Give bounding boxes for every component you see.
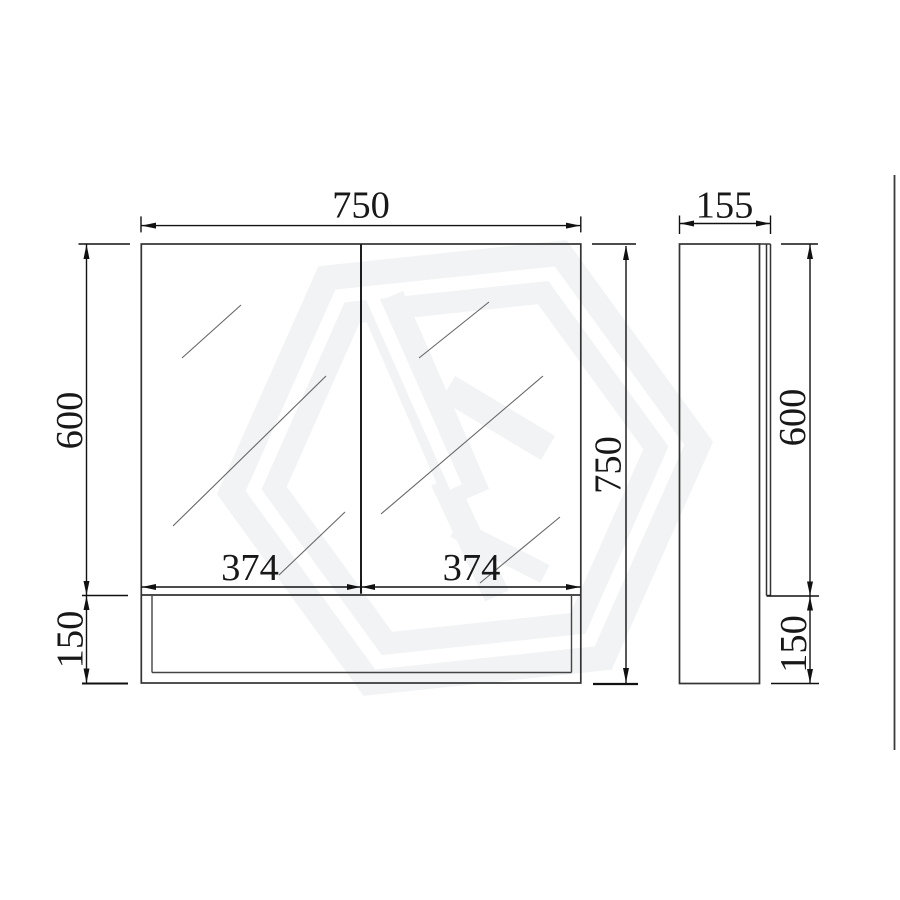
svg-text:150: 150 xyxy=(49,611,91,669)
svg-text:750: 750 xyxy=(332,185,390,227)
svg-text:600: 600 xyxy=(772,389,814,447)
svg-text:150: 150 xyxy=(773,615,815,673)
svg-text:600: 600 xyxy=(49,392,91,450)
svg-text:374: 374 xyxy=(221,547,279,589)
svg-text:155: 155 xyxy=(696,185,754,227)
svg-text:374: 374 xyxy=(443,547,501,589)
svg-text:750: 750 xyxy=(587,436,629,494)
